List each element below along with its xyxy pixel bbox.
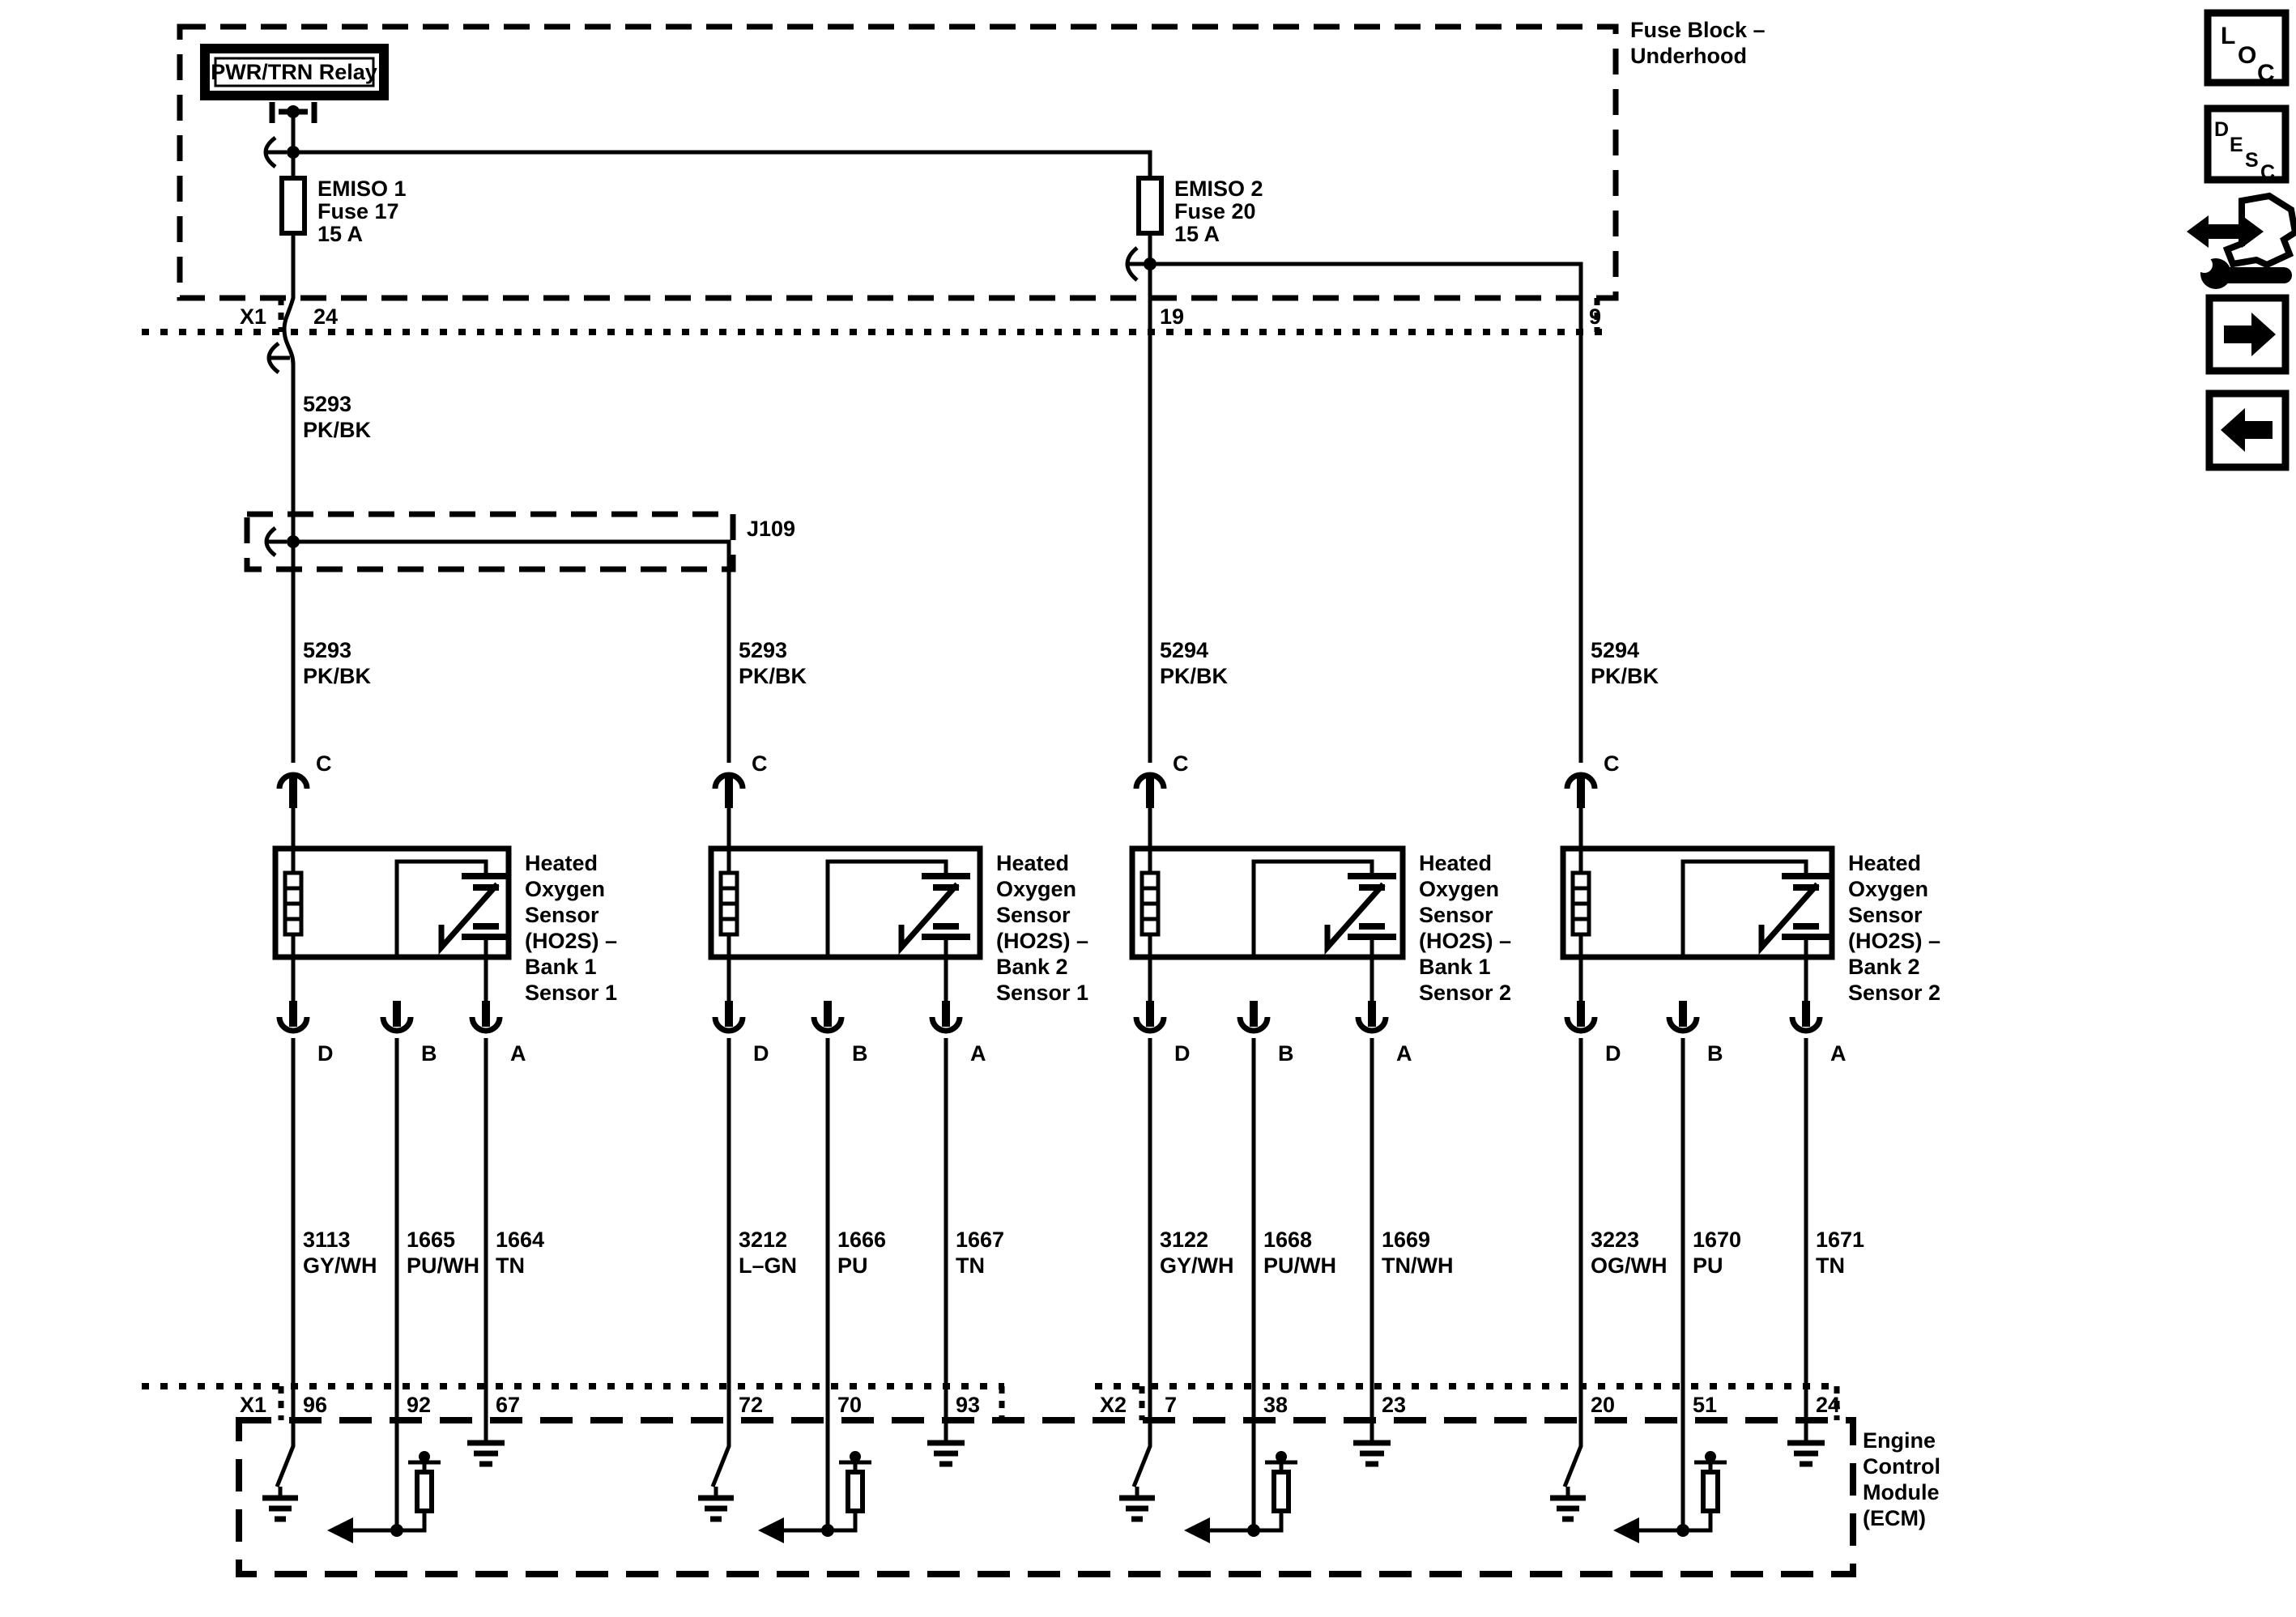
top-pin-9: 9 [1589, 304, 1601, 329]
ecm-pin-7: 7 [1165, 1393, 1177, 1417]
ground-icon [698, 1498, 734, 1519]
ecm-pin-96: 96 [303, 1393, 327, 1417]
ecm-pin-38: 38 [1263, 1393, 1288, 1417]
feed3-color: PK/BK [1160, 664, 1229, 688]
fuse-block-border [180, 27, 1616, 298]
back-button[interactable] [2209, 394, 2285, 467]
clip-arc-relay [266, 138, 287, 167]
pin-letter-b: B [1707, 1041, 1723, 1066]
sensor-name-line: Sensor [525, 903, 599, 927]
signal-arrow-icon [1613, 1517, 1639, 1543]
ecm-driver-pin72 [698, 1420, 734, 1519]
c-connector-stub [1577, 777, 1585, 808]
feed-wiring: EMISO 1 Fuse 17 15 A EMISO 2 Fuse 20 15 … [266, 112, 1581, 763]
desc-letter: S [2245, 149, 2259, 172]
repair-navigate-button[interactable] [2187, 196, 2295, 289]
fuse-block-label-line2: Underhood [1630, 44, 1747, 68]
ecm-connector-x2: X2 [1100, 1393, 1127, 1417]
ecm-ground-pin23 [1353, 1420, 1391, 1464]
feed1-color: PK/BK [303, 664, 372, 688]
sensor-name-line: Sensor 1 [525, 981, 617, 1005]
pin-stub [942, 1001, 950, 1027]
ground-icon [1787, 1443, 1825, 1464]
sensor-name-line: Bank 1 [1419, 955, 1491, 979]
relay-label: PWR/TRN Relay [211, 60, 377, 84]
loc-letter: C [2257, 60, 2275, 87]
ecm-label-line: Control [1863, 1454, 1940, 1479]
ground-icon [1550, 1498, 1586, 1519]
sensor-cell-plates [462, 876, 510, 937]
wire-color: OG/WH [1591, 1253, 1668, 1278]
pin-letter-a: A [970, 1041, 986, 1066]
feed2-color: PK/BK [739, 664, 807, 688]
sensor-box [275, 849, 509, 957]
pin-letter-d: D [753, 1041, 769, 1066]
resistor-icon [1274, 1472, 1289, 1511]
desc-letter: C [2260, 161, 2275, 184]
pin-stub [393, 1001, 401, 1027]
top-pin-19: 19 [1160, 304, 1184, 329]
ecm-pin-24: 24 [1816, 1393, 1840, 1417]
wire-circuit: 3122 [1160, 1228, 1208, 1252]
sensor-cell-plates [922, 876, 970, 937]
wire-color: TN [1816, 1253, 1845, 1278]
sensor-name-line: (HO2S) – [525, 929, 617, 953]
pin-letter-b: B [1278, 1041, 1294, 1066]
pin-letter-b: B [852, 1041, 868, 1066]
fuse1-name: EMISO 1 [317, 177, 407, 201]
fuse-block-underhood: Fuse Block – Underhood [180, 18, 1766, 298]
c-connector-stub [289, 777, 297, 808]
ecm-pin-20: 20 [1591, 1393, 1615, 1417]
sensor-group-1: C Heated Oxygen Sensor (HO2S) – Bank 1 S… [275, 751, 617, 1420]
fuse2-id: Fuse 20 [1174, 199, 1256, 223]
wire-circuit: 1664 [496, 1228, 544, 1252]
pin-stub [1679, 1001, 1687, 1027]
loc-letter: L [2221, 23, 2235, 49]
fuse1-rating: 15 A [317, 222, 363, 246]
resistor-icon [848, 1472, 863, 1511]
ecm-driver-pin20 [1550, 1420, 1586, 1519]
feed4-color: PK/BK [1591, 664, 1659, 688]
ecm-pin-72: 72 [739, 1393, 763, 1417]
pin-letter-a: A [510, 1041, 526, 1066]
pin-letter-a: A [1396, 1041, 1412, 1066]
ecm-ground-pin93 [927, 1420, 965, 1464]
wire-color: PU [837, 1253, 868, 1278]
fuse-emiso1-symbol [282, 178, 305, 233]
desc-letter: D [2214, 118, 2229, 141]
sensor-name-line: (HO2S) – [996, 929, 1088, 953]
sensor-cell-plates [1348, 876, 1396, 937]
signal-arrow-icon [758, 1517, 784, 1543]
ecm: Engine Control Module (ECM) [239, 1420, 1940, 1574]
double-arrow-icon [2187, 215, 2264, 248]
wire-color: PU [1693, 1253, 1723, 1278]
feed2-circuit: 5293 [739, 638, 787, 662]
signal-arrow-icon [327, 1517, 353, 1543]
sensor-name-line: (HO2S) – [1419, 929, 1511, 953]
pin-stub [1146, 1001, 1154, 1027]
ecm-pin-92: 92 [407, 1393, 431, 1417]
sensor-name-line: Sensor 2 [1848, 981, 1940, 1005]
sensor-name-line: Oxygen [1419, 877, 1499, 901]
wire-circuit: 1671 [1816, 1228, 1864, 1252]
ecm-pin-51: 51 [1693, 1393, 1717, 1417]
wire-circuit: 1670 [1693, 1228, 1741, 1252]
pin-letter-b: B [421, 1041, 437, 1066]
fuse1-id: Fuse 17 [317, 199, 399, 223]
sensor-name-line: Oxygen [1848, 877, 1928, 901]
wire-circuit: 1665 [407, 1228, 455, 1252]
sensor-group-2: C Heated Oxygen Sensor (HO2S) – Bank 2 S… [711, 751, 1088, 1420]
c-connector-stub [1146, 777, 1154, 808]
fuse2-rating: 15 A [1174, 222, 1220, 246]
sensor-name-line: Bank 1 [525, 955, 597, 979]
pin-letter-d: D [1605, 1041, 1621, 1066]
ecm-label-line: (ECM) [1863, 1506, 1926, 1530]
location-button[interactable]: L O C [2208, 13, 2285, 87]
ground-icon [1119, 1498, 1155, 1519]
ecm-pin-70: 70 [837, 1393, 862, 1417]
wire-branch-to-fuse2 [293, 152, 1150, 178]
pin-letter-d: D [1174, 1041, 1191, 1066]
wire-circuit: 1667 [956, 1228, 1004, 1252]
wire-color: PU/WH [407, 1253, 479, 1278]
ecm-pin-93: 93 [956, 1393, 980, 1417]
sensor-name-line: Heated [996, 851, 1069, 875]
clip-arc-j109 [266, 528, 287, 555]
wire-circuit: 1666 [837, 1228, 886, 1252]
sensor-name-line: Sensor [996, 903, 1071, 927]
ecm-label-line: Module [1863, 1480, 1940, 1504]
ecm-connector-x1: X1 [240, 1393, 266, 1417]
sensor-name-line: Heated [1848, 851, 1921, 875]
ground-icon [262, 1498, 298, 1519]
ecm-ground-pin67 [467, 1420, 505, 1464]
fuse-block-label-line1: Fuse Block – [1630, 18, 1766, 42]
pin-stub [824, 1001, 832, 1027]
ecm-label-line: Engine [1863, 1428, 1936, 1453]
sensor-name-line: Heated [1419, 851, 1492, 875]
wire-color: L–GN [739, 1253, 797, 1278]
feed1-circuit: 5293 [303, 638, 351, 662]
pin-stub [1577, 1001, 1585, 1027]
j109-label: J109 [747, 517, 795, 541]
ecm-driver-pin96 [262, 1420, 298, 1519]
desc-letter: E [2230, 134, 2243, 156]
wire-color: TN [496, 1253, 525, 1278]
toolbar: L O C D E S C [2187, 13, 2295, 467]
top-connector-label: X1 [240, 304, 266, 329]
resistor-icon [417, 1472, 432, 1511]
pin-stub [725, 1001, 733, 1027]
ground-icon [467, 1443, 505, 1464]
sensor-name-line: (HO2S) – [1848, 929, 1940, 953]
c-pin-letter: C [1604, 751, 1620, 776]
sensor-group-4: C Heated Oxygen Sensor (HO2S) – Bank 2 S… [1563, 751, 1940, 1420]
wiring-diagram-page: Fuse Block – Underhood PWR/TRN Relay EMI… [0, 0, 2296, 1617]
c-pin-letter: C [752, 751, 768, 776]
pin-letter-d: D [317, 1041, 334, 1066]
forward-button[interactable] [2209, 298, 2285, 371]
top-connector-stubs [281, 298, 1597, 332]
feed-upper-color: PK/BK [303, 418, 372, 442]
pin-stub [1802, 1001, 1810, 1027]
wire-5293-main [284, 233, 293, 763]
description-button[interactable]: D E S C [2208, 109, 2285, 184]
c-pin-letter: C [316, 751, 332, 776]
ecm-pin-23: 23 [1382, 1393, 1406, 1417]
pin-stub [1368, 1001, 1376, 1027]
sensor-group-3: C Heated Oxygen Sensor (HO2S) – Bank 1 S… [1132, 751, 1511, 1420]
pin-letter-a: A [1830, 1041, 1847, 1066]
wire-circuit: 1668 [1263, 1228, 1312, 1252]
pin-stub [482, 1001, 490, 1027]
sensor-box [1132, 849, 1403, 957]
resistor-icon [1703, 1472, 1718, 1511]
sensor-name-line: Bank 2 [996, 955, 1068, 979]
wire-circuit: 3113 [303, 1228, 351, 1252]
sensor-box [1563, 849, 1832, 957]
ground-icon [927, 1443, 965, 1464]
sensor-name-line: Sensor [1419, 903, 1493, 927]
wire-circuit: 3223 [1591, 1228, 1639, 1252]
feed3-circuit: 5294 [1160, 638, 1208, 662]
ecm-signal-pin70 [758, 1420, 871, 1543]
pin-stub [289, 1001, 297, 1027]
ground-icon [1353, 1443, 1391, 1464]
wire-circuit: 1669 [1382, 1228, 1430, 1252]
sensor-name-line: Heated [525, 851, 598, 875]
sensor-name-line: Sensor 2 [1419, 981, 1511, 1005]
wire-color: PU/WH [1263, 1253, 1336, 1278]
wire-color: TN/WH [1382, 1253, 1453, 1278]
ecm-pin-67: 67 [496, 1393, 520, 1417]
signal-arrow-icon [1184, 1517, 1210, 1543]
clip-arc-5294 [1126, 248, 1145, 280]
wire-color: GY/WH [1160, 1253, 1234, 1278]
wire-color: GY/WH [303, 1253, 377, 1278]
sensor-name-line: Oxygen [525, 877, 605, 901]
sensor-name-line: Sensor 1 [996, 981, 1088, 1005]
c-connector-stub [725, 777, 733, 808]
sensor-name-line: Oxygen [996, 877, 1076, 901]
wire-color: TN [956, 1253, 985, 1278]
feed-upper-circuit: 5293 [303, 392, 351, 416]
top-pin-24: 24 [313, 304, 338, 329]
loc-letter: O [2238, 42, 2256, 69]
ecm-signal-pin51 [1613, 1420, 1727, 1543]
ecm-driver-pin7 [1119, 1420, 1155, 1519]
wire-circuit: 3212 [739, 1228, 787, 1252]
top-connector-x1: X1 24 19 9 [142, 298, 1608, 332]
ecm-signal-pin38 [1184, 1420, 1297, 1543]
pin-stub [1250, 1001, 1258, 1027]
sensor-cell-plates [1782, 876, 1830, 937]
fuse2-name: EMISO 2 [1174, 177, 1263, 201]
ecm-ground-pin24 [1787, 1420, 1825, 1464]
wire-j109-branch [293, 542, 729, 763]
sensor-name-line: Bank 2 [1848, 955, 1920, 979]
feed4-circuit: 5294 [1591, 638, 1639, 662]
ecm-signal-pin92 [327, 1420, 441, 1543]
c-pin-letter: C [1173, 751, 1189, 776]
ho2s-wiring-diagram: Fuse Block – Underhood PWR/TRN Relay EMI… [0, 0, 2296, 1617]
fuse-emiso2-symbol [1139, 178, 1161, 233]
sensor-name-line: Sensor [1848, 903, 1923, 927]
